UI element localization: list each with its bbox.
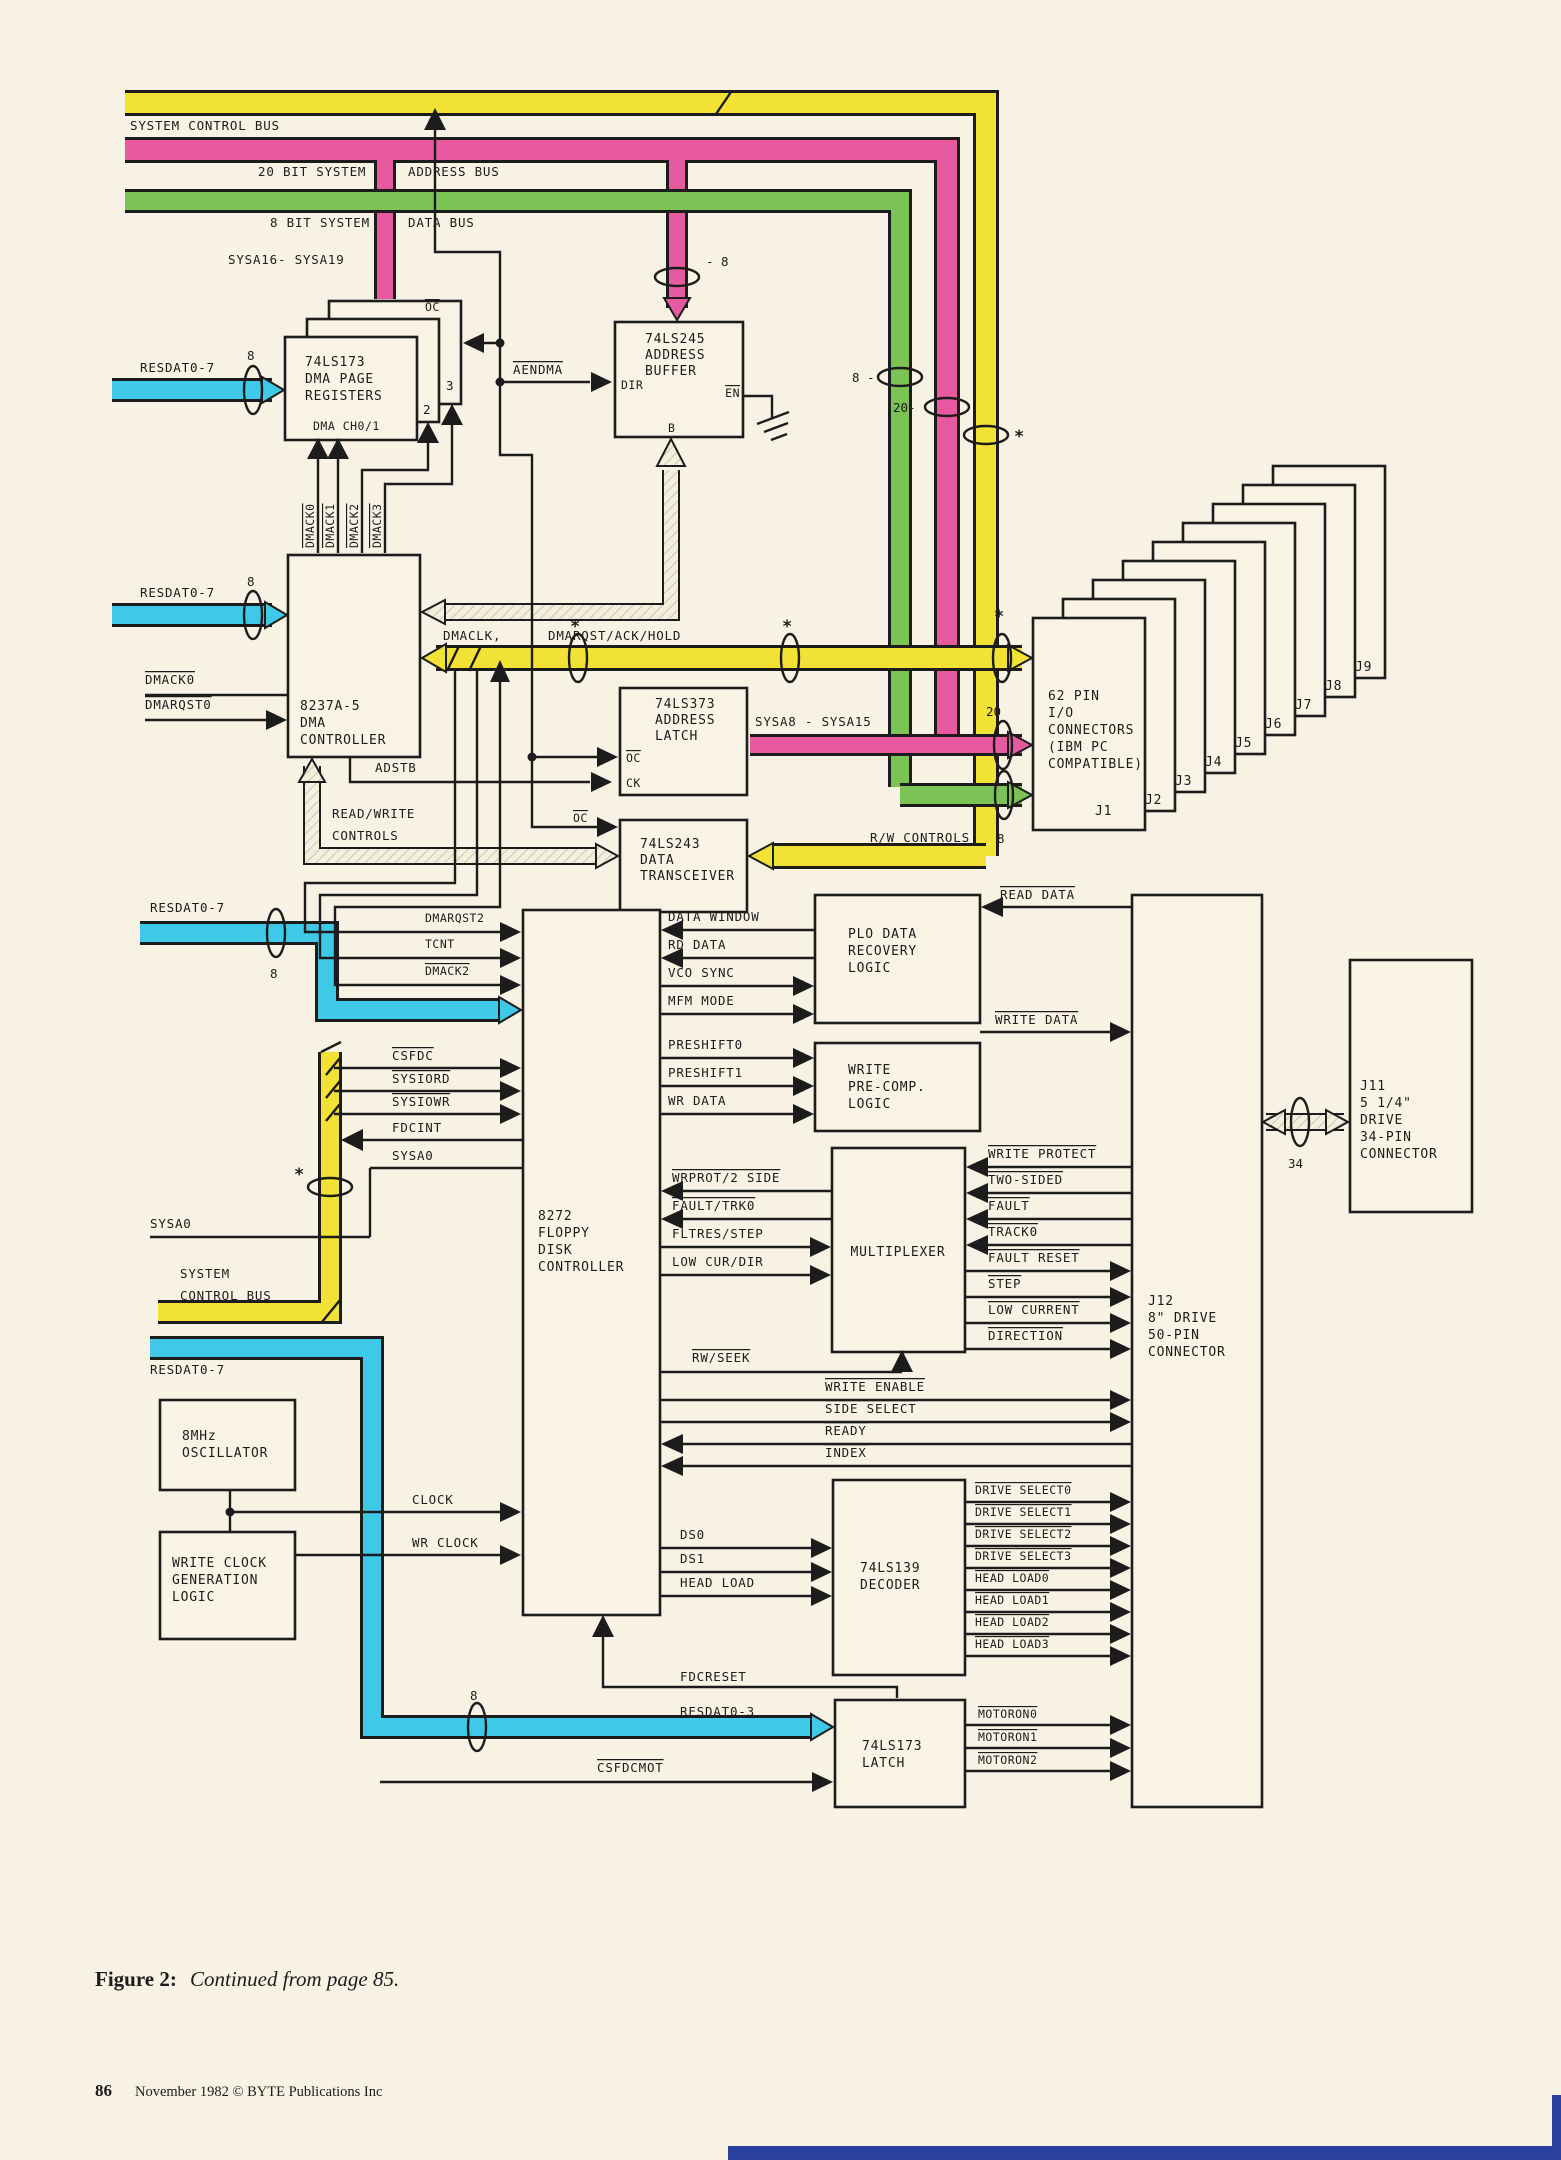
j4-label: J4 (1205, 755, 1222, 770)
ioconn-title-1: 62 PIN (1048, 689, 1100, 704)
label-two-sided: TWO-SIDED (988, 1172, 1063, 1187)
label-preshift0: PRESHIFT0 (668, 1037, 743, 1052)
label-index: INDEX (825, 1445, 867, 1460)
j5-label: J5 (1235, 736, 1252, 751)
latch173-title-1: 74LS173 (862, 1739, 922, 1754)
label-scb-bottom-2: CONTROL BUS (180, 1288, 272, 1303)
ioconn-title-3: CONNECTORS (1048, 723, 1134, 738)
label-star-1: * (1014, 427, 1024, 447)
label-drive-select3: DRIVE SELECT3 (975, 1549, 1072, 1563)
label-resdat0-3: RESDAT0-3 (680, 1704, 755, 1719)
j11-title-2: 5 1/4" (1360, 1096, 1412, 1111)
label-oc-xcvr: OC (573, 811, 588, 825)
label-side-select: SIDE SELECT (825, 1401, 917, 1416)
label-motoron2: MOTORON2 (978, 1753, 1037, 1767)
buf245-pin-b: B (668, 421, 675, 435)
label-wr-clock: WR CLOCK (412, 1535, 479, 1550)
j8-label: J8 (1325, 679, 1342, 694)
j3-label: J3 (1175, 774, 1192, 789)
oscillator-box (160, 1400, 295, 1490)
label-reg2: 2 (423, 402, 431, 417)
label-rw-controls: R/W CONTROLS (870, 830, 970, 845)
label-head-load3: HEAD LOAD3 (975, 1637, 1049, 1651)
latch373-title-2: ADDRESS (655, 713, 715, 728)
label-head-load2: HEAD LOAD2 (975, 1615, 1049, 1629)
plo-title-1: PLO DATA (848, 927, 917, 942)
precomp-title-1: WRITE (848, 1063, 891, 1078)
dma-title-1: 8237A-5 (300, 699, 360, 714)
label-sysa0-2: SYSA0 (150, 1216, 192, 1231)
j11-title-1: J11 (1360, 1079, 1386, 1094)
ioconn-title-5: COMPATIBLE) (1048, 757, 1143, 772)
label-csfdc: CSFDC (392, 1048, 434, 1063)
regs-title-2: DMA PAGE (305, 372, 374, 387)
label-csfdcmot: CSFDCMOT (597, 1760, 664, 1775)
j11-title-3: DRIVE (1360, 1113, 1403, 1128)
label-width8-1: 8 (247, 348, 255, 363)
label-rd-data: RD DATA (668, 937, 726, 952)
label-star-3: * (782, 617, 792, 637)
j12-title-3: 50-PIN (1148, 1328, 1200, 1343)
buf245-pin-dir: DIR (621, 378, 643, 392)
xcvr-title-3: TRANSCEIVER (640, 869, 735, 884)
fdc-title-3: DISK (538, 1243, 573, 1258)
connector-stack-62pin (1033, 466, 1385, 830)
plo-title-2: RECOVERY (848, 944, 917, 959)
label-dmack0: DMACK0 (145, 672, 195, 687)
j6-label: J6 (1265, 717, 1282, 732)
label-vco-sync: VCO SYNC (668, 965, 735, 980)
precomp-title-2: PRE-COMP. (848, 1080, 926, 1095)
buf245-pin-en: EN (725, 386, 740, 400)
label-dmarqst-ack-hold: DMARQST/ACK/HOLD (548, 628, 681, 643)
label-width8-3: 8 (270, 966, 278, 981)
label-width8-4: 8 (470, 1688, 478, 1703)
regs-title-1: 74LS173 (305, 355, 365, 370)
label-width34: 34 (1288, 1156, 1303, 1171)
label-width8-2: 8 (247, 574, 255, 589)
regs-title-3: REGISTERS (305, 389, 383, 404)
label-fault-trk0: FAULT/TRK0 (672, 1198, 755, 1213)
label-drive-select1: DRIVE SELECT1 (975, 1505, 1072, 1519)
dec139-title-1: 74LS139 (860, 1561, 920, 1576)
label-write-protect: WRITE PROTECT (988, 1146, 1096, 1161)
mux-title: MULTIPLEXER (851, 1245, 946, 1260)
j12-title-4: CONNECTOR (1148, 1345, 1226, 1360)
label-mfm-mode: MFM MODE (668, 993, 735, 1008)
label-8bit-system: 8 BIT SYSTEM (270, 215, 370, 230)
label-resdat-1: RESDAT0-7 (140, 360, 215, 375)
label-oc-regs: OC (425, 300, 440, 314)
label-rw-seek: RW/SEEK (692, 1350, 750, 1365)
label-drive-select2: DRIVE SELECT2 (975, 1527, 1072, 1541)
label-data-bus: DATA BUS (408, 215, 475, 230)
label-low-cur-dir: LOW CUR/DIR (672, 1254, 764, 1269)
label-controls: CONTROLS (332, 828, 399, 843)
plo-box (815, 895, 980, 1023)
label-star-4: * (994, 607, 1004, 627)
label-resdat-2: RESDAT0-7 (140, 585, 215, 600)
label-wrprot: WRPROT/2 SIDE (672, 1170, 780, 1185)
label-width8-6: 8 - (852, 370, 875, 385)
wclk-title-1: WRITE CLOCK (172, 1556, 267, 1571)
fdc-title-2: FLOPPY (538, 1226, 590, 1241)
j12-title-2: 8" DRIVE (1148, 1311, 1217, 1326)
bus-data-green (125, 201, 900, 787)
label-ready: READY (825, 1423, 867, 1438)
buf245-title-2: ADDRESS (645, 348, 705, 363)
label-ds1: DS1 (680, 1551, 705, 1566)
label-20bit-system: 20 BIT SYSTEM (258, 164, 366, 179)
label-sysa0-1: SYSA0 (392, 1148, 434, 1163)
label-dmarqst2: DMARQST2 (425, 911, 484, 925)
label-track0: TRACK0 (988, 1224, 1038, 1239)
label-sysa8-15: SYSA8 - SYSA15 (755, 714, 872, 729)
label-direction: DIRECTION (988, 1328, 1063, 1343)
osc-title-2: OSCILLATOR (182, 1446, 268, 1461)
label-fdcreset: FDCRESET (680, 1669, 747, 1684)
label-motoron1: MOTORON1 (978, 1730, 1037, 1744)
j1-label: J1 (1095, 804, 1112, 819)
label-head-load1: HEAD LOAD1 (975, 1593, 1049, 1607)
label-step: STEP (988, 1276, 1021, 1291)
label-star-5: * (294, 1165, 304, 1185)
label-width8-5: - 8 (706, 254, 729, 269)
label-tcnt: TCNT (425, 937, 455, 951)
latch373-pin-ck: CK (626, 776, 641, 790)
label-read-write: READ/WRITE (332, 806, 415, 821)
label-sysiowr: SYSIOWR (392, 1094, 450, 1109)
xcvr-title-2: DATA (640, 853, 675, 868)
j11-title-5: CONNECTOR (1360, 1147, 1438, 1162)
label-dmack0-v: DMACK0 (303, 503, 317, 548)
fdc-title-1: 8272 (538, 1209, 573, 1224)
publication-line: November 1982 © BYTE Publications Inc (135, 2084, 382, 2100)
bus-address-white (438, 470, 671, 612)
label-ds0: DS0 (680, 1527, 705, 1542)
osc-title-1: 8MHz (182, 1429, 217, 1444)
label-motoron0: MOTORON0 (978, 1707, 1037, 1721)
label-dmarqst0: DMARQST0 (145, 697, 212, 712)
latch173-title-2: LATCH (862, 1756, 905, 1771)
label-sysiord: SYSIORD (392, 1071, 450, 1086)
plo-title-3: LOGIC (848, 961, 891, 976)
latch373-title-3: LATCH (655, 729, 698, 744)
j11-title-4: 34-PIN (1360, 1130, 1412, 1145)
label-write-data: WRITE DATA (995, 1012, 1078, 1027)
dma-title-3: CONTROLLER (300, 733, 386, 748)
fdc-title-4: CONTROLLER (538, 1260, 624, 1275)
page-number: 86 (95, 2081, 112, 2100)
j7-label: J7 (1295, 698, 1312, 713)
label-reg3: 3 (446, 378, 454, 393)
latch373-pin-oc: OC (626, 751, 641, 765)
label-fault-reset: FAULT RESET (988, 1250, 1080, 1265)
buf245-title-1: 74LS245 (645, 332, 705, 347)
latch373-title-1: 74LS373 (655, 697, 715, 712)
label-clock: CLOCK (412, 1492, 454, 1507)
buf245-title-3: BUFFER (645, 364, 697, 379)
caption: Figure 2: Continued from page 85. 86 Nov… (95, 1967, 399, 2100)
label-dmack1-v: DMACK1 (323, 503, 337, 548)
label-low-current: LOW CURRENT (988, 1302, 1080, 1317)
label-data-window: DATA WINDOW (668, 909, 760, 924)
label-read-data: READ DATA (1000, 887, 1075, 902)
regs-sub: DMA CH0/1 (313, 419, 380, 433)
dec139-title-2: DECODER (860, 1578, 920, 1593)
schematic-canvas: SYSTEM CONTROL BUS 20 BIT SYSTEM ADDRESS… (0, 0, 1561, 2160)
label-write-enable: WRITE ENABLE (825, 1379, 925, 1394)
xcvr-title-1: 74LS243 (640, 837, 700, 852)
label-fltres-step: FLTRES/STEP (672, 1226, 764, 1241)
figure-caption-text: Continued from page 85. (190, 1967, 399, 1991)
label-dmack2: DMACK2 (425, 964, 470, 978)
j9-label: J9 (1355, 660, 1372, 675)
dma-title-2: DMA (300, 716, 326, 731)
page-edge (728, 2095, 1561, 2160)
label-drive-select0: DRIVE SELECT0 (975, 1483, 1072, 1497)
label-wr-data: WR DATA (668, 1093, 726, 1108)
label-head-load: HEAD LOAD (680, 1575, 755, 1590)
precomp-title-3: LOGIC (848, 1097, 891, 1112)
label-head-load0: HEAD LOAD0 (975, 1571, 1049, 1585)
ioconn-title-4: (IBM PC (1048, 740, 1108, 755)
label-fault: FAULT (988, 1198, 1030, 1213)
label-width20-2: 20 (986, 704, 1001, 719)
label-width20-1: 20- (893, 400, 916, 415)
label-scb-bottom-1: SYSTEM (180, 1266, 230, 1281)
magazine-page: SYSTEM CONTROL BUS 20 BIT SYSTEM ADDRESS… (0, 0, 1561, 2160)
label-dmack3-v: DMACK3 (370, 503, 384, 548)
label-aendma: AENDMA (513, 362, 563, 377)
label-fdcint: FDCINT (392, 1120, 442, 1135)
label-preshift1: PRESHIFT1 (668, 1065, 743, 1080)
label-resdat-4: RESDAT0-7 (150, 1362, 225, 1377)
wclk-title-3: LOGIC (172, 1590, 215, 1605)
wclk-title-2: GENERATION (172, 1573, 258, 1588)
ioconn-title-2: I/O (1048, 706, 1074, 721)
label-dmack2-v: DMACK2 (347, 503, 361, 548)
label-dmaclk: DMACLK, (443, 628, 501, 643)
label-address-bus: ADDRESS BUS (408, 164, 500, 179)
figure-caption-label: Figure 2: (95, 1967, 177, 1991)
label-system-control-bus: SYSTEM CONTROL BUS (130, 118, 280, 133)
label-adstb: ADSTB (375, 760, 417, 775)
label-sysa16-19: SYSA16- SYSA19 (228, 252, 345, 267)
label-width8-7: 8 (997, 831, 1005, 846)
label-resdat-3: RESDAT0-7 (150, 900, 225, 915)
j12-title-1: J12 (1148, 1294, 1174, 1309)
j2-label: J2 (1145, 793, 1162, 808)
